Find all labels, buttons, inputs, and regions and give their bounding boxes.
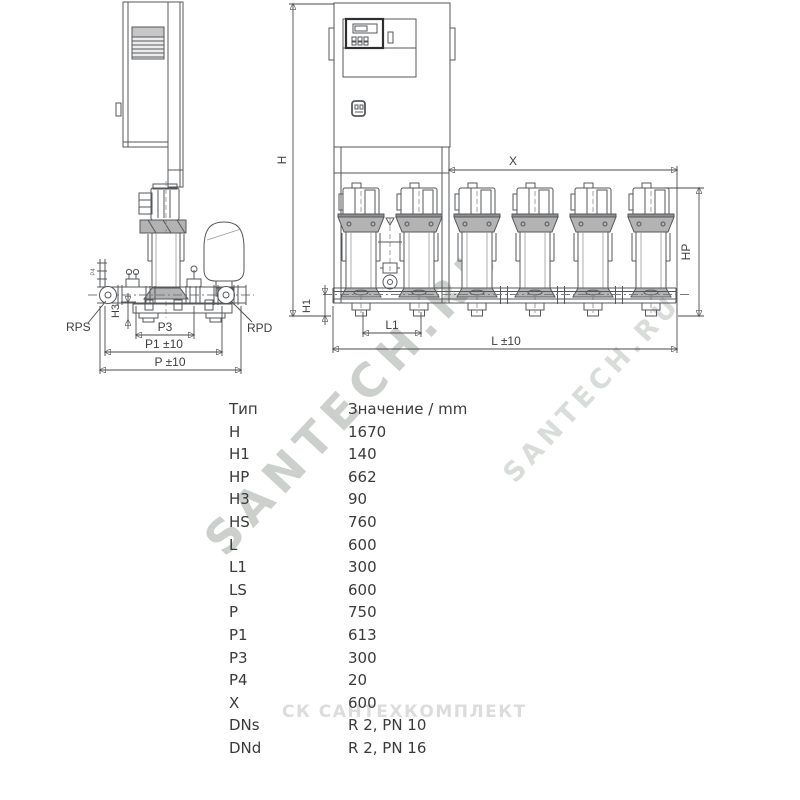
dim-value-cell: 1670 (348, 421, 386, 444)
pump-motor-side (139, 184, 179, 220)
table-row: LS 600 (229, 579, 467, 602)
top-valve-right (187, 266, 201, 287)
col-header-value: Значение / mm (348, 398, 467, 421)
table-row: P 750 (229, 601, 467, 624)
dim-type-cell: H1 (229, 443, 348, 466)
table-row: DNs R 2, PN 10 (229, 714, 467, 737)
rps-label: RPS (66, 320, 91, 334)
dim-value-cell: 760 (348, 511, 377, 534)
dim-value-cell: 600 (348, 579, 377, 602)
vent-louvre (132, 27, 164, 59)
dim-type-cell: HS (229, 511, 348, 534)
dim-value-cell: R 2, PN 10 (348, 714, 426, 737)
dim-value-cell: 300 (348, 647, 377, 670)
dim-value-cell: 750 (348, 601, 377, 624)
h3-label: H3 (110, 304, 122, 318)
dim-type-cell: P4 (229, 669, 348, 692)
dim-value-cell: 600 (348, 534, 377, 557)
table-header-row: Тип Значение / mm (229, 398, 467, 421)
front-view: H X H1 HP L1 (275, 3, 704, 353)
pressure-sensor-assembly (378, 218, 402, 290)
side-view: P4 H3 (66, 2, 273, 374)
control-cabinet-side (116, 2, 168, 147)
col-header-type: Тип (229, 398, 348, 421)
table-row: H 1670 (229, 421, 467, 444)
dimension-table: Тип Значение / mm H 1670 H1 140 HP 662 H… (229, 398, 467, 760)
table-row: P4 20 (229, 669, 467, 692)
table-row: DNd R 2, PN 16 (229, 737, 467, 760)
table-row: HS 760 (229, 511, 467, 534)
dim-value-cell: 300 (348, 556, 377, 579)
pump-row (338, 183, 674, 316)
control-cabinet-front (329, 3, 455, 147)
technical-drawing: P4 H3 (0, 0, 800, 400)
dim-type-cell: DNd (229, 737, 348, 760)
table-row: P1 613 (229, 624, 467, 647)
hp-label: HP (679, 244, 693, 261)
table-row: H3 90 (229, 488, 467, 511)
dim-type-cell: L (229, 534, 348, 557)
dim-type-cell: H3 (229, 488, 348, 511)
dim-value-cell: R 2, PN 16 (348, 737, 426, 760)
table-row: H1 140 (229, 443, 467, 466)
dim-value-cell: 90 (348, 488, 367, 511)
dim-value-cell: 20 (348, 669, 367, 692)
hinge-left (329, 28, 334, 60)
dimension-l1: L1 (363, 312, 421, 337)
table-row: X 600 (229, 692, 467, 715)
dim-value-cell: 140 (348, 443, 377, 466)
door-handle (116, 103, 121, 116)
dim-value-cell: 613 (348, 624, 377, 647)
x-label: X (509, 154, 517, 168)
pump-unit-1 (338, 183, 384, 316)
table-row: L 600 (229, 534, 467, 557)
l-label: L ±10 (491, 334, 521, 348)
pump-unit-4 (512, 183, 558, 316)
dimension-drawing-page: SANTECH.RU SANTECH.RU СК САНТЕХКОМПЛЕКТ (0, 0, 800, 800)
dim-type-cell: P3 (229, 647, 348, 670)
pump-unit-6 (628, 183, 674, 316)
expansion-vessel (204, 222, 244, 296)
h1-label: H1 (301, 299, 313, 313)
hinge-right (450, 28, 455, 60)
dim-type-cell: P (229, 601, 348, 624)
rpd-label: RPD (247, 321, 273, 335)
p-label: P ±10 (154, 355, 185, 369)
pump-unit-2 (396, 183, 442, 316)
dim-type-cell: DNs (229, 714, 348, 737)
discharge-valve (214, 285, 238, 305)
dim-type-cell: L1 (229, 556, 348, 579)
dim-type-cell: H (229, 421, 348, 444)
pump-unit-5 (570, 183, 616, 316)
dim-type-cell: P1 (229, 624, 348, 647)
h-label: H (275, 156, 289, 165)
dim-type-cell: HP (229, 466, 348, 489)
dim-value-cell: 600 (348, 692, 377, 715)
p3-label: P3 (158, 320, 173, 334)
dim-type-cell: X (229, 692, 348, 715)
cabinet-stand-side (168, 2, 183, 187)
dimension-h1: H1 (301, 285, 325, 325)
gauge-fitting: P4 (91, 259, 107, 287)
table-row: P3 300 (229, 647, 467, 670)
table-row: HP 662 (229, 466, 467, 489)
dimension-h: H (275, 4, 334, 316)
dim-type-cell: LS (229, 579, 348, 602)
table-row: L1 300 (229, 556, 467, 579)
p1-label: P1 ±10 (145, 337, 183, 351)
dim-value-cell: 662 (348, 466, 377, 489)
pump-unit-3 (454, 183, 500, 316)
p4-label: P4 (91, 268, 97, 276)
pump-coupling-side (140, 220, 186, 233)
top-valve-left (126, 269, 139, 287)
l1-label: L1 (385, 318, 399, 332)
